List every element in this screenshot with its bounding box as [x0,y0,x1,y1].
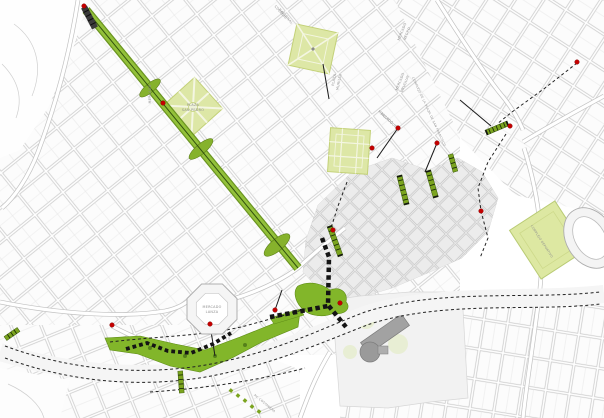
label-plaza-line2: SAN PEDRO [182,108,204,112]
red-dot [370,146,375,151]
market-roundabout [187,284,237,334]
red-dot [331,228,336,233]
label-mercado-lanza-line2: LANZA [206,310,219,314]
red-dot [508,124,513,129]
label-mercado-street: MERCADO [148,84,152,103]
central-square-park [288,24,338,74]
tree-canopy [343,345,357,359]
label-plaza-line1: PLAZA [187,103,200,107]
red-dot [396,126,401,131]
red-dot [82,4,87,9]
red-dot [273,308,278,313]
map-canvas: MERCADO PLAZA SAN PEDRO COLEGIO NACIONAL… [0,0,604,418]
red-dot [161,101,166,106]
red-dot [208,322,213,327]
red-dot [338,301,343,306]
label-mercado-lanza-line1: MERCADO [203,305,222,309]
garden-maze-park [328,128,371,175]
red-dot [435,141,440,146]
red-dot [575,60,580,65]
red-dot [479,209,484,214]
urban-plan-map: MERCADO PLAZA SAN PEDRO COLEGIO NACIONAL… [0,0,604,418]
red-dot [110,323,115,328]
